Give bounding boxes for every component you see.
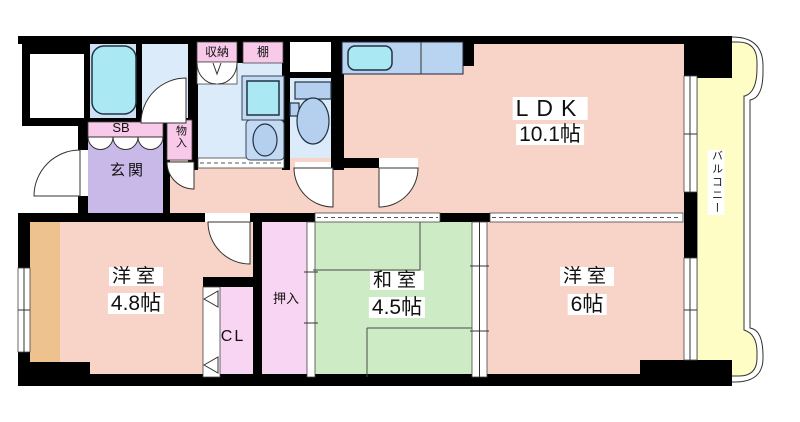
western2-size-label: 6帖 <box>568 294 607 315</box>
ldk-name-label: LDK <box>513 97 588 120</box>
window-west <box>18 268 30 352</box>
ldk-size-label: 10.1帖 <box>516 124 584 145</box>
vanity-sink <box>253 124 277 156</box>
western2-partition <box>490 213 683 222</box>
japanese-size-label: 4.5帖 <box>369 297 425 318</box>
washer <box>247 81 279 115</box>
balcony-floor <box>697 42 757 376</box>
pipe-space-left <box>30 54 84 118</box>
storage-double-door <box>197 62 237 84</box>
storage-label: 収納 <box>205 46 229 58</box>
window-western2-balcony <box>684 258 697 360</box>
pipe-space-center <box>290 42 331 72</box>
front-door <box>34 150 80 196</box>
entrance-label: 玄関 <box>110 163 146 178</box>
japanese-western2-fusuma <box>470 222 489 377</box>
shoe-box-label: SB <box>112 121 129 134</box>
doorway-western1 <box>205 213 250 222</box>
doorway-ldk <box>379 158 418 168</box>
floor-plan-graphics <box>0 0 800 422</box>
western1-name-label: 洋室 <box>109 267 163 286</box>
western2-name-label: 洋室 <box>560 267 614 286</box>
window-ldk-balcony <box>684 76 697 192</box>
japanese-name-label: 和室 <box>370 271 424 290</box>
small-storage-label: 物入 <box>175 125 186 149</box>
balcony-label: バルコニー <box>708 150 725 215</box>
shelf-label: 棚 <box>257 46 269 58</box>
japanese-room-partition <box>315 213 440 222</box>
western-1-wood-strip <box>30 222 60 362</box>
cl-folding-door <box>203 287 220 377</box>
oshiire-label: 押入 <box>273 292 299 305</box>
kitchen-sink <box>348 46 392 70</box>
closet-label: CL <box>221 329 245 345</box>
western1-size-label: 4.8帖 <box>108 293 164 314</box>
shoe-box-doors <box>88 137 163 150</box>
floor-plan: LDK 10.1帖 洋室 4.8帖 和室 4.5帖 洋室 6帖 玄関 SB 収納… <box>0 0 800 422</box>
bathtub <box>92 46 136 114</box>
